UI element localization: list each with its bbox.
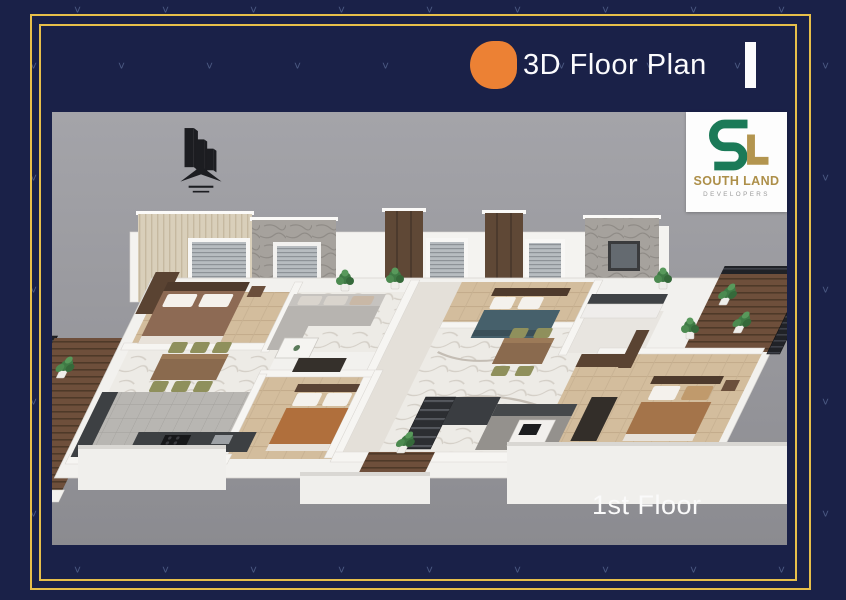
orange-dot-icon: [470, 41, 517, 89]
floor-plan-image: SOUTH LAND DEVELOPERS 1st Floor: [52, 112, 787, 545]
brand-subtitle: DEVELOPERS: [703, 191, 770, 198]
accent-bar: [745, 42, 756, 88]
poster-page: ˅˅˅˅˅˅˅˅˅˅˅˅˅˅˅˅˅˅˅˅˅˅˅˅˅˅˅˅˅˅˅˅˅˅˅˅˅˅˅˅…: [0, 0, 846, 600]
floor-plan-render: [52, 112, 787, 545]
brand-name: SOUTH LAND: [694, 174, 780, 188]
southland-sl-monogram-icon: [702, 118, 772, 172]
brand-logo: SOUTH LAND DEVELOPERS: [686, 112, 787, 212]
page-title: 3D Floor Plan: [523, 49, 707, 82]
header: 3D Floor Plan: [470, 40, 707, 90]
building-skyline-icon: [178, 126, 224, 196]
floor-label: 1st Floor: [592, 490, 702, 521]
kitchen3-counter: [580, 294, 668, 318]
